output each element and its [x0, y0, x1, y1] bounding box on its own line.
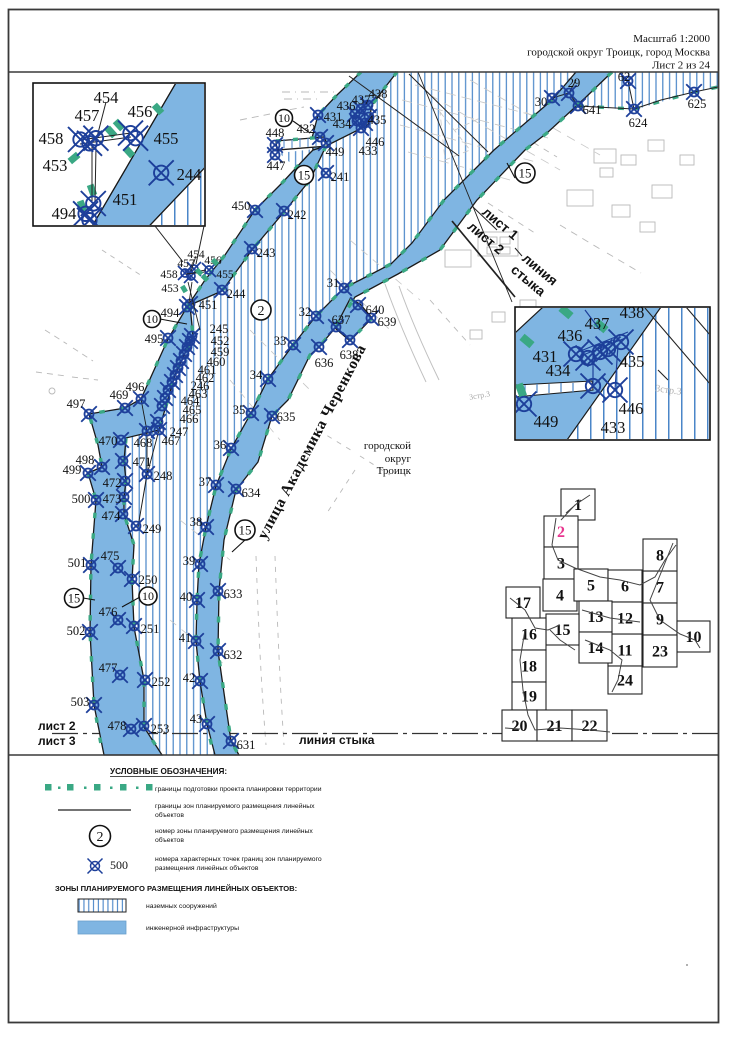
svg-text:497: 497 — [67, 397, 86, 411]
svg-text:лист 2: лист 2 — [38, 719, 76, 733]
svg-text:границы подготовки проекта пла: границы подготовки проекта планировки те… — [155, 786, 322, 793]
svg-text:32: 32 — [299, 305, 312, 319]
svg-text:500: 500 — [72, 492, 91, 506]
svg-text:471: 471 — [133, 455, 152, 469]
svg-text:8: 8 — [656, 548, 664, 565]
svg-text:448: 448 — [266, 126, 285, 140]
svg-text:20: 20 — [512, 718, 528, 735]
svg-text:10: 10 — [278, 111, 290, 125]
svg-text:433: 433 — [359, 144, 378, 158]
svg-text:636: 636 — [315, 356, 334, 370]
svg-text:34: 34 — [250, 368, 263, 382]
svg-text:472: 472 — [103, 476, 122, 490]
svg-text:40: 40 — [180, 590, 193, 604]
svg-text:437: 437 — [352, 93, 371, 107]
svg-text:432: 432 — [297, 122, 316, 136]
svg-text:4: 4 — [556, 588, 564, 605]
svg-text:2: 2 — [557, 524, 565, 541]
svg-text:39: 39 — [183, 554, 196, 568]
svg-text:23: 23 — [652, 644, 668, 661]
svg-text:467: 467 — [162, 434, 181, 448]
svg-text:15: 15 — [298, 168, 311, 182]
svg-text:Троицк: Троицк — [377, 465, 412, 477]
svg-text:10: 10 — [142, 589, 154, 603]
svg-text:33: 33 — [274, 334, 287, 348]
svg-text:22: 22 — [582, 718, 598, 735]
svg-text:43: 43 — [190, 712, 203, 726]
svg-text:436: 436 — [558, 326, 583, 345]
svg-text:625: 625 — [688, 97, 707, 111]
svg-text:474: 474 — [102, 509, 122, 523]
svg-text:478: 478 — [108, 719, 127, 733]
svg-text:2: 2 — [97, 830, 104, 845]
svg-text:5: 5 — [587, 578, 595, 595]
svg-text:объектов: объектов — [155, 811, 184, 819]
svg-text:2: 2 — [258, 304, 265, 319]
svg-text:477: 477 — [99, 661, 118, 675]
svg-text:433: 433 — [601, 418, 626, 437]
svg-text:454: 454 — [94, 88, 119, 107]
svg-text:городской округ Троицк, город: городской округ Троицк, город Москва — [527, 47, 710, 59]
svg-text:449: 449 — [534, 412, 559, 431]
svg-text:252: 252 — [152, 675, 171, 689]
svg-text:36: 36 — [214, 438, 227, 452]
svg-text:449: 449 — [326, 145, 345, 159]
svg-text:468: 468 — [134, 436, 153, 450]
svg-text:456: 456 — [128, 102, 153, 121]
svg-text:453: 453 — [43, 156, 68, 175]
svg-text:11: 11 — [617, 643, 632, 660]
svg-text:632: 632 — [224, 648, 243, 662]
svg-text:номера характерных точек гр: номера характерных точек границ зон план… — [155, 856, 322, 863]
svg-text:наземных сооружений: наземных сооружений — [146, 902, 217, 910]
svg-text:434: 434 — [333, 117, 353, 131]
svg-text:объектов: объектов — [155, 836, 184, 844]
svg-text:244: 244 — [227, 287, 247, 301]
svg-text:639: 639 — [378, 315, 397, 329]
svg-text:451: 451 — [113, 190, 138, 209]
svg-text:455: 455 — [154, 129, 179, 148]
svg-text:250: 250 — [139, 573, 158, 587]
svg-text:473: 473 — [103, 492, 122, 506]
svg-text:446: 446 — [619, 399, 644, 418]
svg-text:435: 435 — [620, 352, 645, 371]
svg-text:635: 635 — [277, 410, 296, 424]
svg-text:253: 253 — [151, 722, 170, 736]
svg-text:249: 249 — [143, 522, 162, 536]
svg-text:434: 434 — [546, 361, 571, 380]
svg-text:10: 10 — [146, 312, 158, 326]
svg-text:243: 243 — [257, 246, 276, 260]
svg-text:637: 637 — [332, 313, 351, 327]
svg-text:244: 244 — [177, 165, 202, 184]
svg-text:37: 37 — [199, 475, 212, 489]
svg-text:13: 13 — [588, 609, 604, 626]
svg-text:435: 435 — [368, 113, 387, 127]
svg-text:30: 30 — [535, 95, 548, 109]
svg-text:38: 38 — [190, 515, 203, 529]
svg-text:248: 248 — [154, 469, 173, 483]
svg-text:инженерной инфраструктуры: инженерной инфраструктуры — [146, 924, 239, 932]
svg-text:границы зон планируемого разме: границы зон планируемого размещения лине… — [155, 802, 315, 810]
svg-text:лист 3: лист 3 — [38, 734, 76, 748]
svg-text:447: 447 — [267, 159, 286, 173]
svg-text:29: 29 — [568, 76, 581, 90]
svg-text:631: 631 — [237, 738, 256, 752]
svg-text:502: 502 — [67, 624, 86, 638]
svg-text:242: 242 — [288, 208, 307, 222]
svg-text:21: 21 — [547, 718, 563, 735]
svg-text:18: 18 — [521, 659, 537, 676]
svg-text:641: 641 — [583, 103, 602, 117]
svg-text:450: 450 — [232, 199, 251, 213]
svg-text:634: 634 — [242, 486, 262, 500]
svg-text:15: 15 — [239, 522, 252, 537]
svg-text:Лист 2 из 24: Лист 2 из 24 — [652, 60, 711, 72]
svg-text:469: 469 — [110, 388, 129, 402]
svg-text:633: 633 — [224, 587, 243, 601]
svg-text:линия стыка: линия стыка — [299, 733, 375, 747]
svg-text:35: 35 — [233, 403, 246, 417]
svg-text:УСЛОВНЫЕ ОБОЗНАЧЕНИЯ:: УСЛОВНЫЕ ОБОЗНАЧЕНИЯ: — [110, 767, 227, 776]
svg-text:438: 438 — [620, 303, 645, 322]
svg-text:501: 501 — [68, 556, 87, 570]
svg-text:округ: округ — [385, 453, 412, 465]
svg-text:437: 437 — [585, 314, 610, 333]
svg-text:42: 42 — [183, 671, 196, 685]
svg-text:457: 457 — [75, 106, 100, 125]
svg-text:476: 476 — [99, 605, 118, 619]
svg-text:15: 15 — [519, 165, 532, 180]
svg-text:470: 470 — [99, 434, 118, 448]
svg-text:438: 438 — [369, 87, 388, 101]
svg-text:495: 495 — [145, 332, 164, 346]
svg-text:638: 638 — [340, 348, 359, 362]
svg-text:14: 14 — [588, 640, 604, 657]
svg-text:503: 503 — [71, 695, 90, 709]
svg-text:500: 500 — [110, 858, 128, 872]
svg-text:458: 458 — [39, 129, 64, 148]
svg-text:41: 41 — [179, 631, 192, 645]
svg-text:496: 496 — [126, 380, 145, 394]
svg-text:451: 451 — [199, 298, 218, 312]
svg-text:3: 3 — [557, 556, 565, 573]
svg-text:457: 457 — [177, 258, 195, 270]
svg-text:ЗОНЫ ПЛАНИРУЕМОГО РАЗМЕЩЕНИЯ Л: ЗОНЫ ПЛАНИРУЕМОГО РАЗМЕЩЕНИЯ ЛИНЕЙНЫХ ОБ… — [55, 884, 297, 893]
svg-text:Масштаб 1:2000: Масштаб 1:2000 — [633, 33, 710, 45]
svg-text:15: 15 — [68, 591, 81, 605]
svg-text:городской: городской — [364, 440, 411, 452]
svg-text:458: 458 — [160, 269, 178, 281]
svg-text:размещения линейных объектов: размещения линейных объектов — [155, 864, 259, 872]
svg-text:241: 241 — [331, 170, 350, 184]
svg-text:494: 494 — [161, 306, 181, 320]
svg-text:455: 455 — [216, 269, 234, 281]
svg-text:251: 251 — [141, 622, 160, 636]
svg-text:453: 453 — [161, 283, 179, 295]
svg-text:номер зоны планируемого размещ: номер зоны планируемого размещения линей… — [155, 827, 313, 835]
svg-text:31: 31 — [327, 276, 340, 290]
svg-text:499: 499 — [63, 463, 82, 477]
svg-text:494: 494 — [52, 204, 77, 223]
svg-text:624: 624 — [629, 116, 649, 130]
svg-text:475: 475 — [101, 549, 120, 563]
svg-text:466: 466 — [180, 412, 199, 426]
